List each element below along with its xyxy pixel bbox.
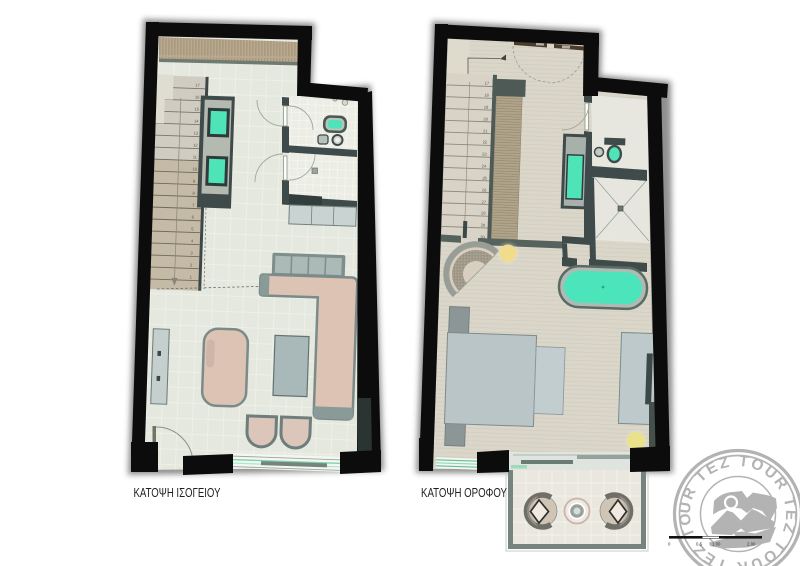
svg-text:ΚΑΤΟΨΗ ΟΡΟΦΟΥ: ΚΑΤΟΨΗ ΟΡΟΦΟΥ	[421, 486, 508, 500]
svg-text:1.00: 1.00	[712, 542, 721, 547]
svg-text:UR TEZ TOUR TEZ TOUR TEZ TO: UR TEZ TOUR TEZ TOUR TEZ TO	[677, 453, 800, 566]
svg-text:2.00: 2.00	[747, 542, 756, 547]
svg-text:ΚΑΤΟΨΗ ΙΣΟΓΕΙΟΥ: ΚΑΤΟΨΗ ΙΣΟΓΕΙΟΥ	[134, 486, 222, 500]
svg-text:0.5: 0.5	[696, 542, 703, 547]
svg-text:0: 0	[668, 542, 671, 547]
